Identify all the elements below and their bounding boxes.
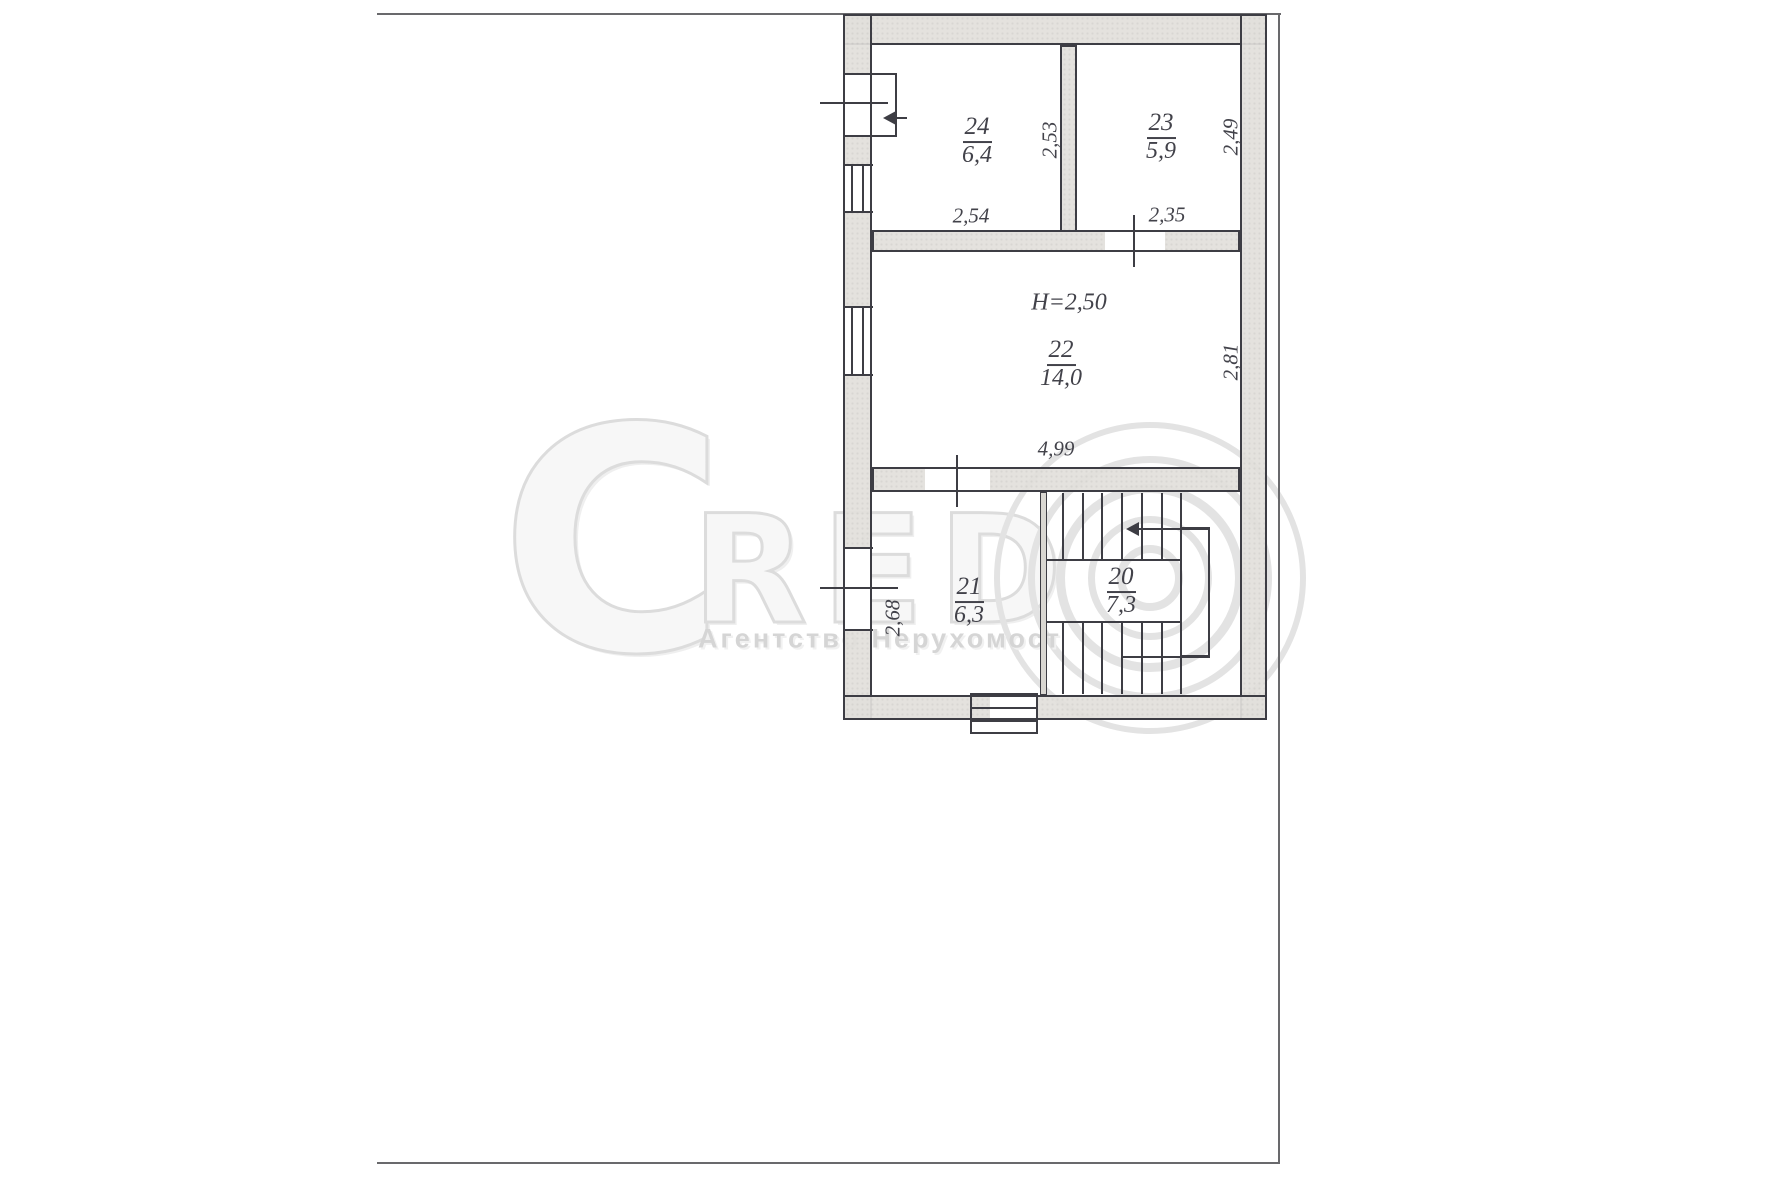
room-label-22: 22 14,0 bbox=[1040, 336, 1082, 392]
room-label-20: 20 7,3 bbox=[1106, 563, 1136, 619]
stair-tread-line bbox=[1082, 493, 1084, 560]
room-label-23: 23 5,9 bbox=[1146, 109, 1176, 165]
room-number: 20 bbox=[1107, 563, 1136, 593]
stair-landing-line-bottom bbox=[1046, 621, 1180, 623]
stair-tread-line bbox=[1161, 493, 1163, 560]
room-area: 5,9 bbox=[1146, 139, 1176, 165]
stair-tread-line bbox=[1141, 493, 1143, 560]
stair-tread-line bbox=[1101, 623, 1103, 694]
dim-room24-depth: 2,53 bbox=[1038, 122, 1063, 159]
room-area: 7,3 bbox=[1106, 593, 1136, 619]
room-label-24: 24 6,4 bbox=[962, 113, 992, 169]
stair-tread-line bbox=[1062, 493, 1064, 560]
stair-core-outline bbox=[1180, 527, 1210, 657]
entrance-tick bbox=[820, 102, 888, 104]
partition-between-21-20 bbox=[1040, 492, 1047, 695]
room-number: 22 bbox=[1047, 336, 1076, 366]
partition-under-rooms-24-23 bbox=[872, 230, 1240, 252]
stair-tread-line bbox=[1121, 623, 1123, 694]
room-number: 21 bbox=[955, 573, 984, 603]
room-number: 24 bbox=[963, 113, 992, 143]
partition-between-24-23 bbox=[1060, 45, 1077, 232]
dim-room22-width: 4,99 bbox=[1038, 437, 1075, 462]
stair-core-bottom-extension bbox=[1123, 656, 1210, 658]
stair-tread-line bbox=[1141, 623, 1143, 694]
room-area: 14,0 bbox=[1040, 366, 1082, 392]
entrance-porch-outline bbox=[843, 73, 897, 137]
dim-room23-depth: 2,49 bbox=[1219, 119, 1244, 156]
dim-room23-width: 2,35 bbox=[1149, 203, 1186, 228]
room-area: 6,4 bbox=[962, 143, 992, 169]
scanned-floor-plan-page: C RED Агентство Нерухомост bbox=[0, 0, 1772, 1181]
stair-tread-line bbox=[1121, 493, 1123, 560]
ceiling-height-note: H=2,50 bbox=[1031, 290, 1107, 317]
room-area: 6,3 bbox=[954, 603, 984, 629]
room-number: 23 bbox=[1147, 109, 1176, 139]
dim-room24-width: 2,54 bbox=[953, 204, 990, 229]
page-border-bottom bbox=[377, 1162, 1280, 1164]
dim-room22-depth: 2,81 bbox=[1219, 344, 1244, 381]
dim-room21-side: 2,68 bbox=[881, 600, 906, 637]
stair-tread-line bbox=[1062, 623, 1064, 694]
stair-landing-line-top bbox=[1046, 559, 1180, 561]
room-label-21: 21 6,3 bbox=[954, 573, 984, 629]
stair-tread-line bbox=[1101, 493, 1103, 560]
stair-tread-line bbox=[1161, 623, 1163, 694]
stair-tread-line bbox=[1082, 623, 1084, 694]
page-border-right bbox=[1278, 13, 1280, 1164]
